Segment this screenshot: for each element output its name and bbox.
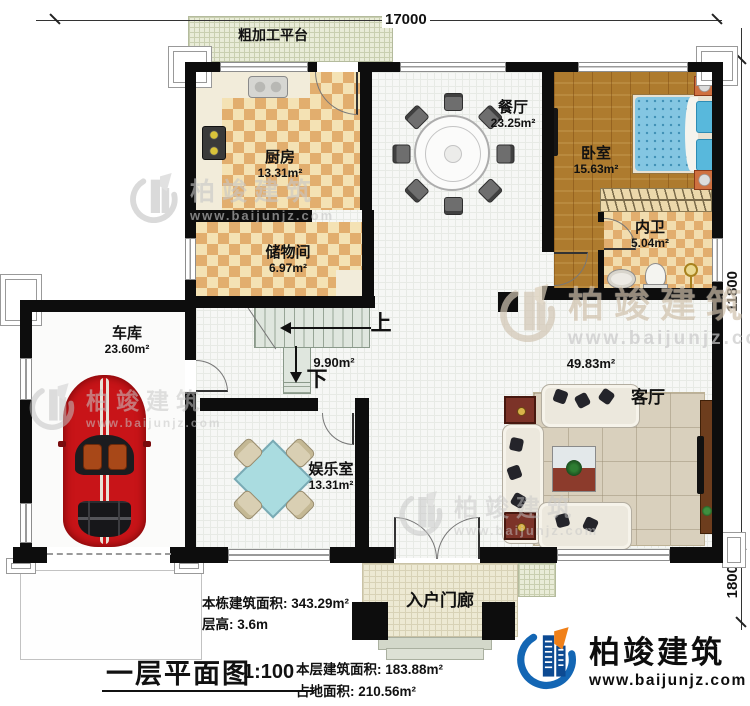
corner-post-inner	[11, 563, 31, 569]
wall	[185, 62, 196, 238]
dimension-top-value: 17000	[382, 11, 430, 28]
wall	[200, 398, 318, 411]
bedroom-area: 15.63m²	[574, 163, 619, 176]
wall	[362, 210, 374, 308]
living-area: 49.83m²	[567, 357, 615, 372]
dining-chair	[444, 93, 463, 111]
window	[185, 238, 196, 280]
wall	[363, 547, 394, 563]
entertainment-label: 娱乐室 13.31m²	[308, 462, 353, 492]
shower-stem	[690, 277, 692, 288]
stairs-up: 上	[371, 312, 392, 336]
dining-chair	[444, 197, 463, 215]
bathroom-sink	[607, 269, 636, 289]
car-mirror	[143, 441, 151, 447]
plan-scale-text: 1:100	[243, 661, 294, 683]
window	[557, 549, 670, 561]
porch-side-garden	[518, 563, 556, 597]
storage-floor-patch	[336, 270, 362, 296]
garage-area: 23.60m²	[105, 343, 150, 356]
wall	[308, 62, 317, 72]
footprint-label: 占地面积:	[296, 684, 355, 699]
living-label: 客厅	[631, 388, 665, 407]
floor-height-value: 3.6m	[237, 617, 268, 632]
floor-height-label: 层高:	[202, 617, 234, 632]
stairs-down: 下	[307, 368, 328, 392]
sofa-pillow	[509, 437, 524, 452]
porch-label: 入户门廊	[406, 591, 474, 610]
corner-post	[722, 532, 746, 568]
window	[578, 62, 688, 72]
window	[20, 358, 32, 400]
dimension-right-value: 11800	[724, 268, 741, 315]
floor-plan-canvas: 17000 11800 1800	[0, 0, 750, 706]
wall	[20, 400, 32, 503]
title-underline	[102, 690, 314, 692]
corner-post-inner	[727, 537, 741, 563]
window	[220, 62, 308, 72]
wall	[20, 300, 32, 358]
dining-chair	[393, 145, 411, 164]
kitchen-stove	[202, 126, 226, 160]
brand-company: 柏竣建筑	[589, 627, 747, 672]
wall	[185, 392, 196, 563]
wall	[542, 288, 723, 300]
window	[400, 62, 506, 72]
bedroom-name: 卧室	[574, 146, 619, 163]
floor-area-value: 183.88m²	[385, 662, 443, 677]
watermark-logo-icon	[128, 173, 182, 223]
wall	[185, 296, 375, 308]
car-mirror	[58, 441, 66, 447]
bedroom-label: 卧室 15.63m²	[574, 146, 619, 176]
table-knob	[517, 523, 526, 532]
wall	[20, 300, 196, 312]
brand-website: www.baijunjz.com	[589, 672, 747, 690]
porch-name: 入户门廊	[406, 591, 474, 610]
wall	[196, 547, 228, 563]
wall	[480, 547, 557, 563]
garage-overhead-door	[47, 553, 171, 555]
storage-label: 储物间 6.97m²	[265, 245, 310, 275]
bed	[632, 94, 716, 174]
building-area-label: 本栋建筑面积:	[202, 596, 288, 611]
car-seat	[83, 444, 102, 470]
wall	[542, 70, 554, 252]
structural-column	[498, 292, 518, 312]
window	[712, 238, 723, 282]
window	[20, 503, 32, 543]
wall	[670, 547, 723, 563]
kitchen-area: 13.31m²	[258, 167, 303, 180]
plan-title: 一层平面图	[106, 652, 251, 691]
wall	[712, 282, 723, 563]
stair-down-arrow-line	[295, 346, 297, 372]
living-name: 客厅	[631, 388, 665, 407]
stairs-down-label: 下	[307, 368, 328, 392]
building-area-value: 343.29m²	[291, 596, 349, 611]
bathroom-label: 内卫 5.04m²	[631, 220, 669, 250]
floor-area-label: 本层建筑面积:	[296, 662, 382, 677]
plan-scale: 1:100	[243, 661, 294, 684]
car-windshield	[75, 435, 134, 475]
corner-post-inner	[179, 563, 199, 569]
dining-label: 餐厅 23.25m²	[491, 100, 536, 130]
wall	[712, 62, 723, 238]
brand-block: 柏竣建筑 www.baijunjz.com	[515, 626, 747, 690]
stair-up-arrowhead	[280, 322, 291, 334]
wardrobe	[600, 188, 712, 212]
shower-head	[684, 263, 698, 277]
storage-area: 6.97m²	[265, 262, 310, 275]
storage-name: 储物间	[265, 245, 310, 262]
platform-label: 粗加工平台	[238, 28, 308, 44]
car-rear-window	[78, 501, 131, 537]
kitchen-label: 厨房 13.31m²	[258, 150, 303, 180]
dining-area: 23.25m²	[491, 117, 536, 130]
side-table	[504, 512, 536, 540]
floor-height-stat: 层高: 3.6m	[202, 613, 268, 633]
dimension-tick	[711, 13, 722, 24]
driveway	[20, 570, 202, 660]
wall	[598, 250, 604, 288]
wall	[196, 210, 312, 222]
footprint-value: 210.56m²	[358, 684, 416, 699]
entertainment-area: 13.31m²	[308, 479, 353, 492]
kitchen-name: 厨房	[258, 150, 303, 167]
cabinet-plant	[702, 506, 712, 516]
stair-up-arrow-line	[291, 327, 371, 329]
dining-table	[414, 115, 490, 191]
porch-pillar	[482, 602, 515, 640]
wall	[355, 398, 369, 547]
bathroom-area: 5.04m²	[631, 237, 669, 250]
dimension-tick	[49, 13, 60, 24]
stair-down-arrowhead	[290, 372, 302, 383]
dining-chair	[497, 145, 515, 164]
dining-table-center	[444, 145, 462, 163]
sports-car	[63, 375, 146, 547]
brand-logo-icon	[515, 626, 581, 690]
garage-name: 车库	[105, 326, 150, 343]
stairs-up-label: 上	[371, 312, 392, 336]
footprint-stat: 占地面积: 210.56m²	[296, 680, 416, 700]
living-area-label: 49.83m²	[567, 357, 615, 372]
garage-door-jamb	[13, 547, 47, 563]
porch-pillar	[352, 602, 388, 640]
table-knob	[517, 407, 526, 416]
coffee-table-plant	[566, 460, 582, 476]
entertainment-name: 娱乐室	[308, 462, 353, 479]
side-table	[504, 396, 536, 424]
wall	[330, 547, 363, 563]
wall	[360, 62, 372, 210]
floor-area-stat: 本层建筑面积: 183.88m²	[296, 658, 443, 678]
plan-title-text: 一层平面图	[106, 659, 251, 689]
kitchen-sink	[248, 76, 288, 98]
platform-name: 粗加工平台	[238, 28, 308, 44]
dining-name: 餐厅	[491, 100, 536, 117]
building-area-stat: 本栋建筑面积: 343.29m²	[202, 592, 349, 612]
garage-label: 车库 23.60m²	[105, 326, 150, 356]
wall	[185, 280, 196, 360]
car-seat	[108, 444, 127, 470]
window	[228, 549, 330, 561]
living-tv	[697, 436, 704, 494]
bathroom-name: 内卫	[631, 220, 669, 237]
dimension-line-top	[36, 20, 722, 21]
